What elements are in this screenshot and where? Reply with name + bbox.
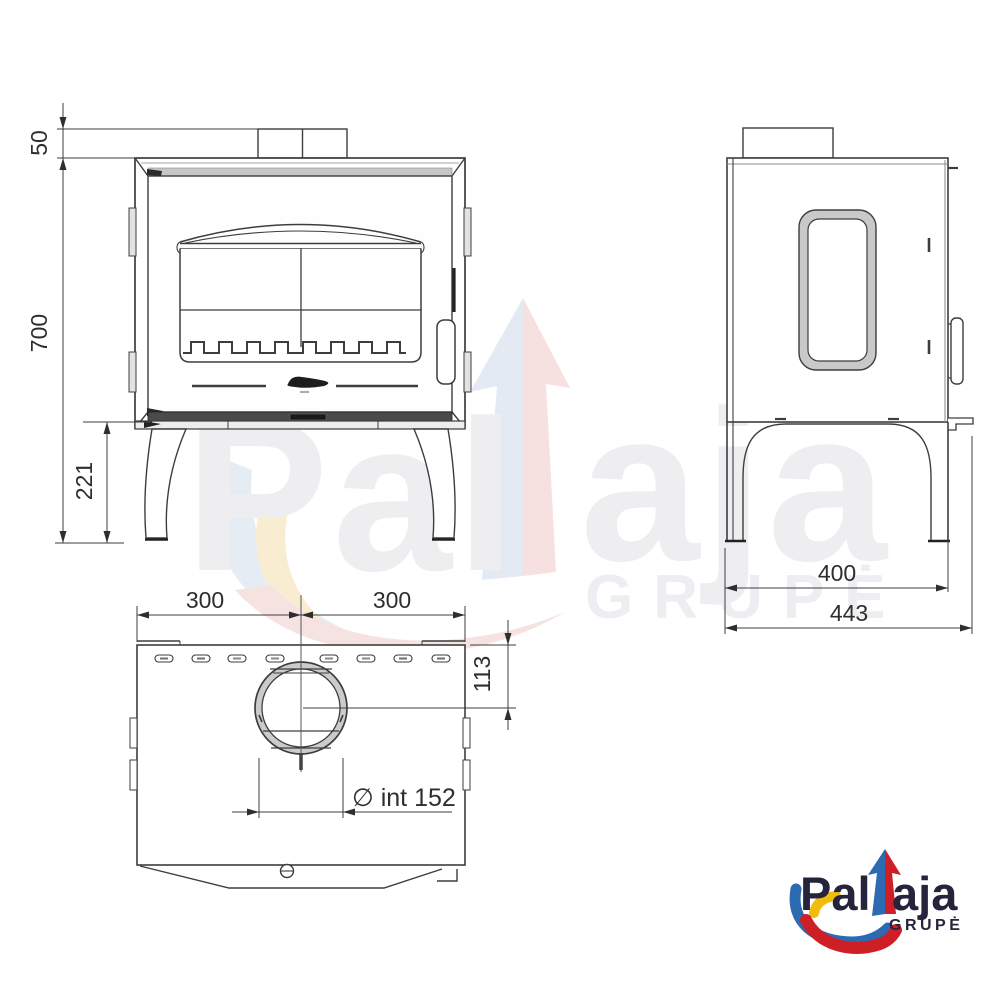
company-logo: Pal aja GRUPĖ	[795, 849, 963, 948]
technical-drawing-page: Pal aja GRUPĖ	[0, 0, 1000, 1000]
top-side-tab-right-upper	[463, 718, 470, 748]
logo-subtitle: GRUPĖ	[889, 916, 963, 934]
drawing-canvas: Pal aja GRUPĖ	[0, 0, 1000, 1000]
logo-word-left: Pal	[800, 867, 871, 920]
dim-top-right-half: 300	[373, 587, 411, 613]
front-side-tab-right-upper	[464, 208, 471, 256]
side-flue-collar	[743, 128, 833, 158]
front-side-tab-left-upper	[129, 208, 136, 256]
dim-side-total-depth: 443	[830, 600, 868, 626]
logo-arrow-blue-half	[868, 849, 885, 916]
watermark-arrow-red-half	[523, 298, 570, 576]
top-side-tab-left-lower	[130, 760, 137, 790]
dim-front-leg-clearance: 221	[71, 462, 97, 500]
dim-front-body-height: 700	[26, 314, 52, 352]
dim-front-collar-height: 50	[26, 130, 52, 156]
front-latch	[290, 414, 326, 420]
dim-side-leg-span: 400	[818, 560, 856, 586]
top-side-tab-left-upper	[130, 718, 137, 748]
top-front-edge-hook	[437, 869, 457, 881]
front-leg-left	[145, 429, 186, 538]
front-side-tab-left-lower	[129, 352, 136, 392]
front-door-handle	[437, 320, 455, 384]
front-base-plate	[135, 421, 465, 429]
front-side-tab-right-lower	[464, 352, 471, 392]
dim-top-flue-diameter: ∅ int 152	[352, 784, 456, 812]
dim-top-left-half: 300	[186, 587, 224, 613]
side-door-handle	[951, 318, 963, 384]
side-window-glass	[808, 219, 867, 361]
logo-word-right: aja	[892, 867, 958, 920]
side-bottom-bracket	[948, 418, 973, 430]
dim-top-flue-offset: 113	[469, 656, 495, 693]
front-top-band	[148, 168, 452, 176]
top-side-tab-right-lower	[463, 760, 470, 790]
